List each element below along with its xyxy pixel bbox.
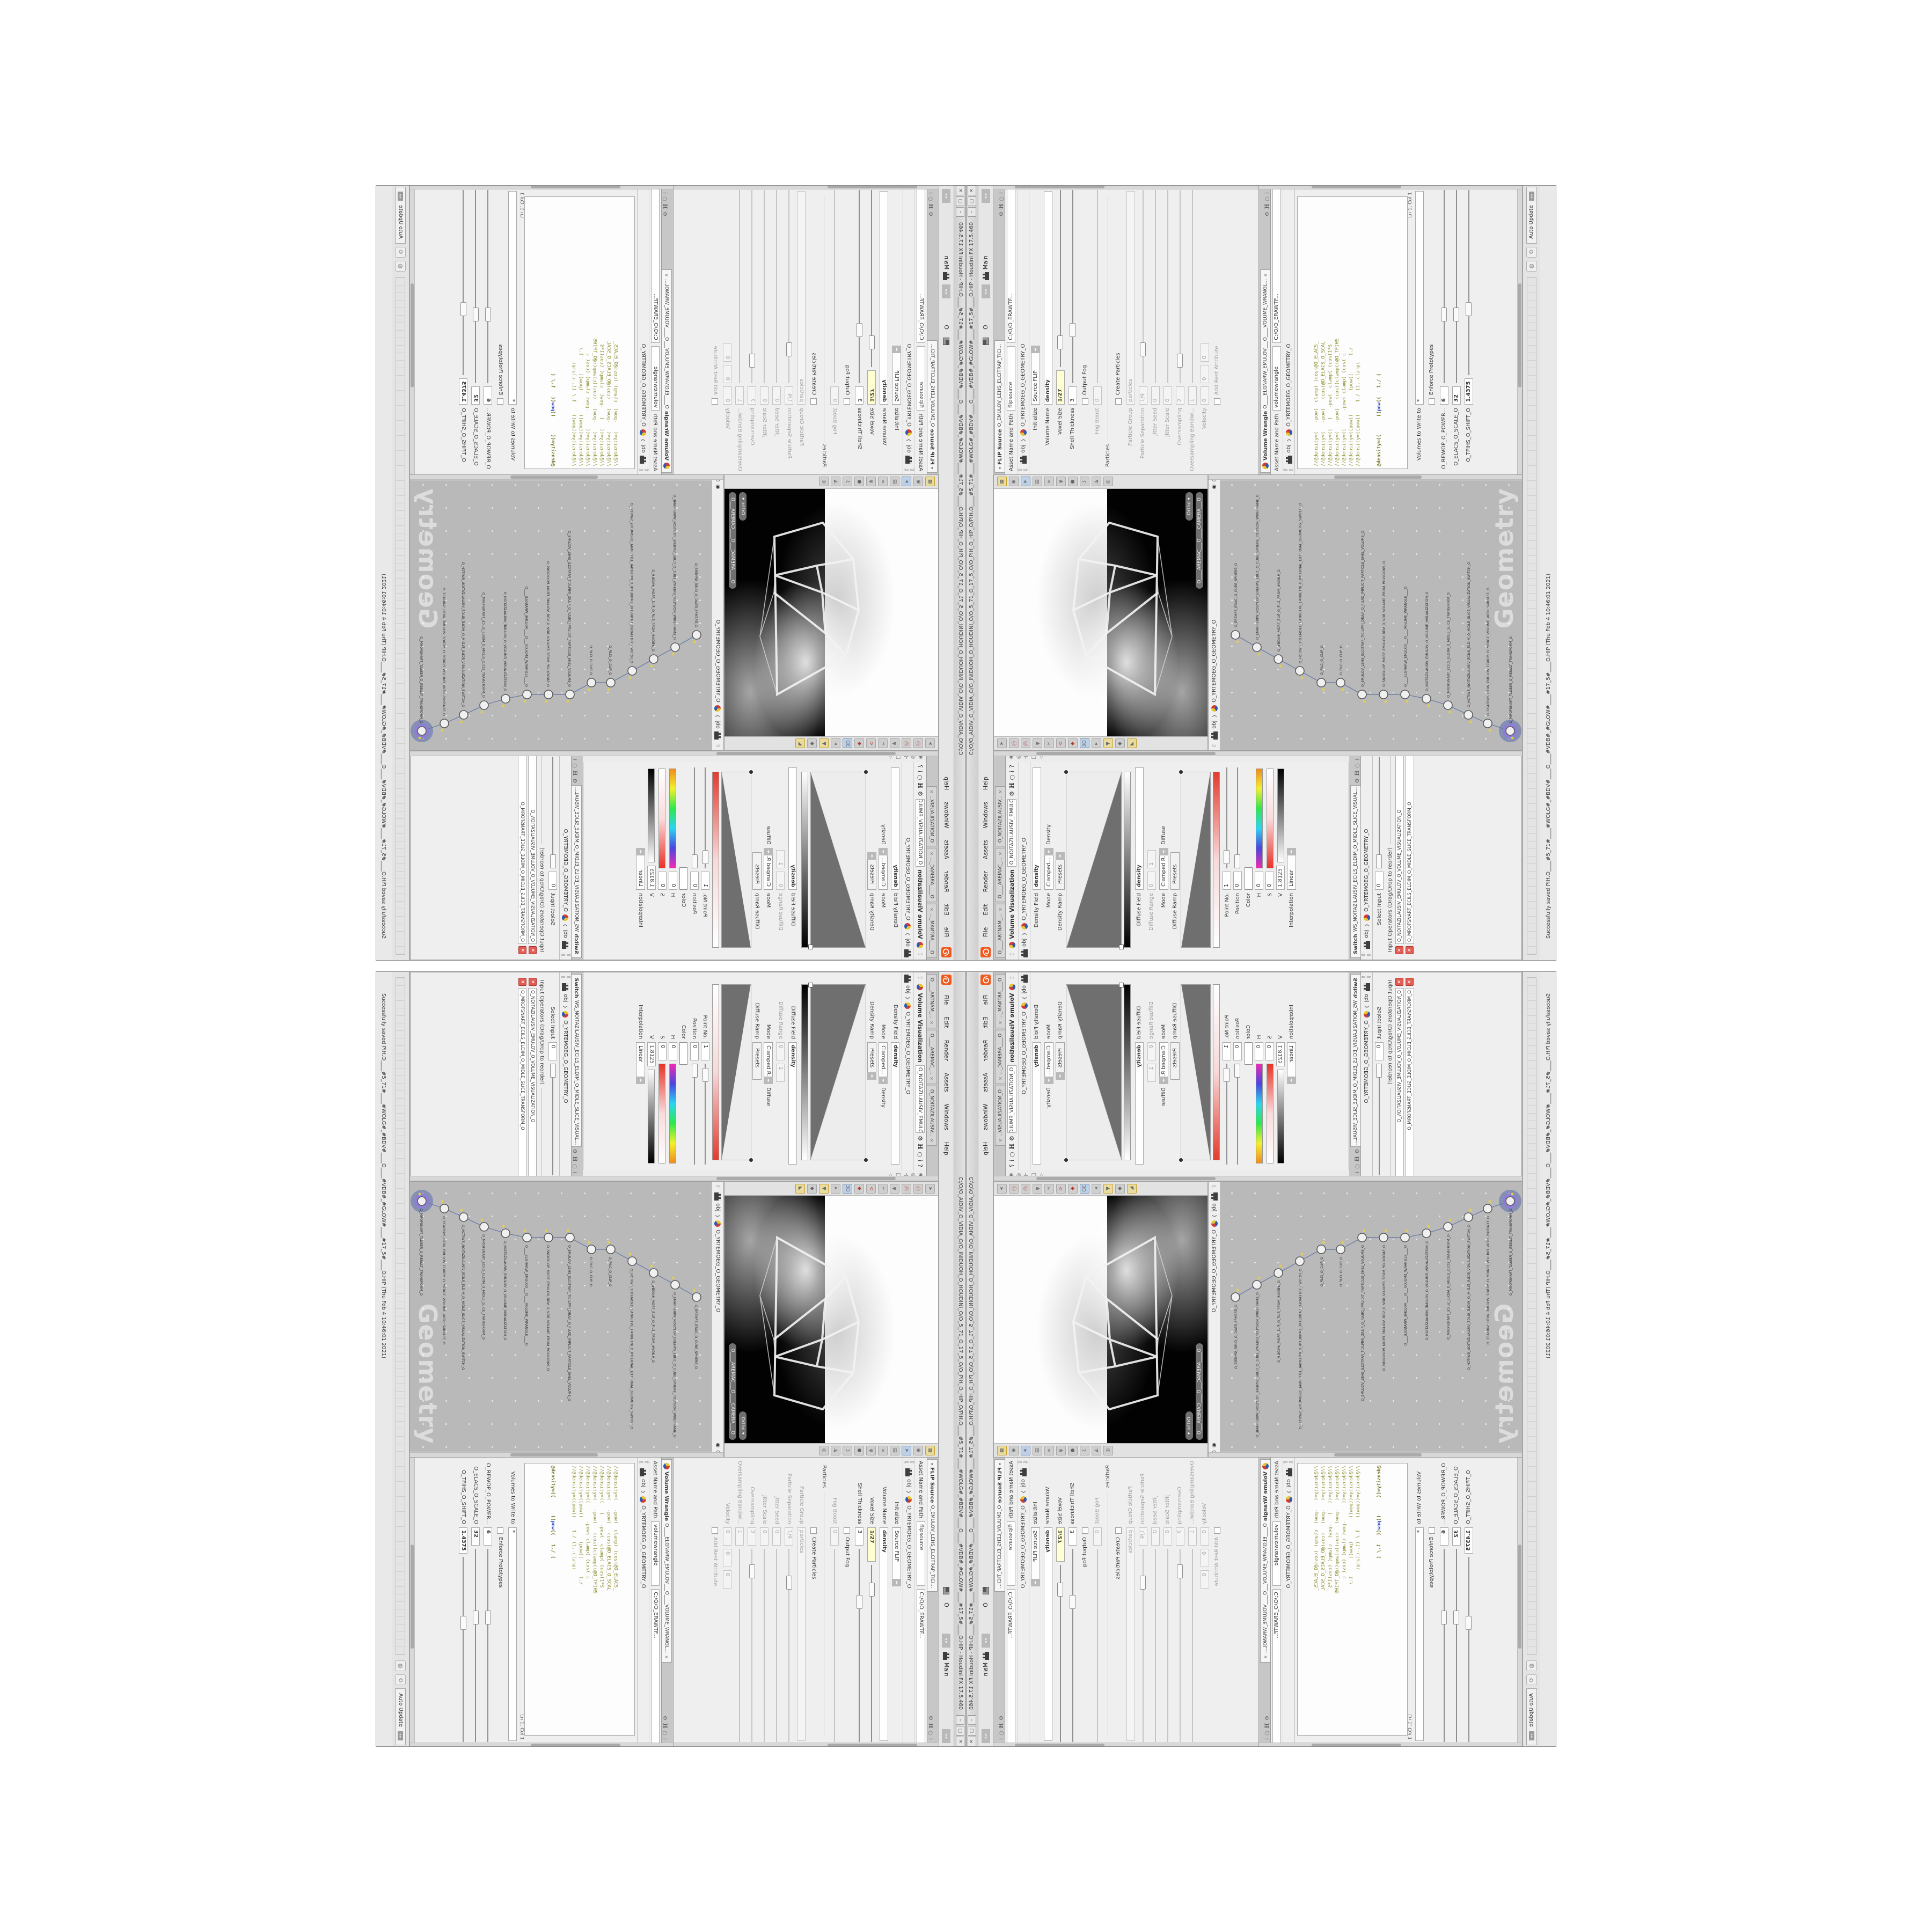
create-particles-checkbox[interactable] bbox=[811, 1527, 817, 1534]
pane-tab[interactable]: O_NOITAZILAUSIV... ✕ bbox=[927, 1086, 937, 1146]
jump-up-icon[interactable]: ⇧ bbox=[918, 952, 923, 957]
delete-input-icon[interactable]: ✕ bbox=[1406, 946, 1414, 954]
node-flag-icon[interactable] bbox=[524, 1230, 526, 1232]
gear-icon[interactable]: ⚙ bbox=[572, 1149, 577, 1154]
density-field-input[interactable]: density bbox=[891, 1042, 900, 1165]
cut-tool-icon[interactable]: ✂ bbox=[878, 739, 888, 749]
oversampling-bandwidth-slider[interactable] bbox=[1189, 190, 1196, 383]
network-node[interactable] bbox=[459, 711, 468, 719]
pane-tab[interactable]: O____ARTNAM_... ✕ bbox=[995, 904, 1005, 958]
network-node[interactable] bbox=[692, 631, 701, 639]
jump-down-icon[interactable]: ⇩ bbox=[638, 467, 643, 472]
points-icon[interactable]: ◎ bbox=[1103, 477, 1113, 487]
pose-library-icon[interactable]: Ⓟ bbox=[1021, 739, 1030, 749]
diffuse-presets-button[interactable]: Presets bbox=[1170, 852, 1180, 890]
gear-icon[interactable]: ⚙ bbox=[927, 1716, 933, 1721]
menu-item[interactable]: Edit bbox=[943, 1011, 950, 1034]
menu-item[interactable]: Help bbox=[943, 1136, 950, 1161]
help-icon[interactable]: ? bbox=[1008, 765, 1015, 768]
menu-item[interactable]: Edit bbox=[943, 898, 950, 921]
value-slider-gradient[interactable] bbox=[648, 769, 655, 862]
search-icon[interactable]: ○ bbox=[1355, 763, 1360, 768]
oversampling-bandwidth-field[interactable]: 1 bbox=[736, 1527, 744, 1546]
position-slider[interactable] bbox=[691, 1064, 698, 1165]
jitter-scale-slider[interactable] bbox=[1164, 190, 1172, 383]
tab-close-icon[interactable]: ✕ bbox=[1263, 273, 1268, 277]
network-node[interactable] bbox=[1358, 690, 1366, 699]
link-icon[interactable]: ∞ bbox=[878, 1446, 888, 1455]
minimize-button[interactable]: – bbox=[968, 1715, 976, 1725]
gear-icon[interactable]: ⚙ bbox=[927, 211, 933, 216]
cache-memory-icon[interactable]: ◍ bbox=[396, 261, 406, 272]
switch-pane-tab[interactable]: Switch WS_NOITAZILAUSIV_ECILS_ELDIM_O_MI… bbox=[572, 974, 582, 1147]
breadcrumb-root[interactable]: obj bbox=[906, 1479, 912, 1487]
breadcrumb-path[interactable]: O_YRTEMOEG_O_GEOMETRY_O bbox=[640, 1505, 646, 1588]
hue-slider-gradient[interactable] bbox=[1256, 1064, 1263, 1163]
density-ramp-curve[interactable] bbox=[810, 772, 866, 948]
cone-light-icon[interactable]: ◣ bbox=[795, 1184, 805, 1194]
cache-memory-icon[interactable]: ◍ bbox=[1526, 1660, 1537, 1671]
tab-close-icon[interactable]: ✕ bbox=[998, 1077, 1003, 1080]
breadcrumb-path[interactable]: O_YRTEMOEG_O_GEOMETRY_O bbox=[562, 1020, 568, 1103]
move-tool-icon[interactable]: ψ bbox=[890, 739, 899, 749]
node-flag-icon[interactable] bbox=[1342, 689, 1344, 691]
density-ramp-curve[interactable] bbox=[810, 984, 866, 1160]
network-node[interactable] bbox=[566, 690, 574, 699]
node-flag-icon[interactable] bbox=[1428, 705, 1430, 707]
pane-tab[interactable]: O_NOITAZILAUSIV... ✕ bbox=[927, 786, 937, 846]
left-pane-scrollbar[interactable] bbox=[994, 1176, 1522, 1181]
network-node[interactable] bbox=[1464, 1213, 1473, 1221]
asset-name-field[interactable]: volumewrangle bbox=[651, 346, 660, 411]
node-flag-icon[interactable] bbox=[545, 700, 548, 703]
value-input[interactable]: 1.8125 bbox=[647, 1042, 656, 1066]
view-cursor-icon[interactable]: ➤ bbox=[1021, 477, 1030, 487]
input-operator-field[interactable]: O_MROFSNART_ECILS_ELDIM_O_MIDLE_SLICE_TR… bbox=[518, 756, 527, 944]
network-node[interactable] bbox=[649, 1269, 658, 1277]
breadcrumb-root[interactable]: obj bbox=[562, 994, 568, 1002]
cut-tool-icon[interactable]: ✂ bbox=[1044, 1184, 1054, 1194]
hue-input[interactable]: 0 bbox=[1255, 872, 1263, 890]
select-tool-icon[interactable]: ➤ bbox=[997, 739, 1007, 749]
asset-name-field[interactable]: volumewrangle bbox=[1272, 1521, 1281, 1586]
desktop-selector[interactable]: Main bbox=[982, 255, 989, 280]
diffuse-field-input[interactable]: density bbox=[789, 767, 797, 890]
spare-param-slider[interactable] bbox=[460, 1557, 467, 1742]
view-3d-tool-icon[interactable]: 3D bbox=[1080, 1184, 1089, 1194]
asset-path-field[interactable]: C:/O/O_ERAWTF... bbox=[651, 188, 660, 343]
shade-sphere-icon[interactable]: ● bbox=[1068, 1446, 1078, 1455]
info-icon[interactable]: i bbox=[572, 759, 577, 760]
hook-icon[interactable]: ʖ bbox=[1080, 477, 1089, 487]
saturation-input[interactable]: 0 bbox=[658, 872, 667, 890]
network-node[interactable] bbox=[1231, 1293, 1240, 1301]
breadcrumb-root[interactable]: obj bbox=[640, 1479, 646, 1487]
gear-icon[interactable]: ⚙ bbox=[999, 1716, 1005, 1721]
breadcrumb-path[interactable]: O_YRTEMOEG_O_GEOMETRY_O bbox=[1364, 829, 1370, 911]
pose-library-icon[interactable]: Ⓟ bbox=[1021, 1184, 1030, 1194]
network-node[interactable] bbox=[418, 1197, 426, 1205]
jitter-seed-slider[interactable] bbox=[773, 190, 781, 383]
menu-item[interactable]: Help bbox=[982, 771, 989, 796]
hscript-icon[interactable]: H bbox=[1355, 771, 1360, 775]
help-icon[interactable]: ? bbox=[917, 765, 924, 768]
oversampling-bandwidth-slider[interactable] bbox=[1189, 1549, 1196, 1742]
node-name-field[interactable]: O_NOITAZILAUSIV_EMULO bbox=[1007, 1065, 1016, 1133]
network-canvas[interactable]: O_EREHPS_EBUC_O_CUBE_SPHERE_OO_EMARFERIW… bbox=[1220, 1182, 1522, 1452]
camera-lock-icon[interactable]: ◉ bbox=[1009, 477, 1019, 487]
hscript-icon[interactable]: H bbox=[917, 1144, 924, 1149]
vex-snippet-editor[interactable]: //@density=( -pow( clamp( (cos(@O_ELACS_… bbox=[524, 1463, 635, 1736]
create-particles-checkbox[interactable] bbox=[811, 398, 817, 405]
enforce-prototypes-checkbox[interactable] bbox=[1429, 398, 1435, 405]
breadcrumb-root[interactable]: obj bbox=[1286, 445, 1292, 453]
output-fog-checkbox[interactable] bbox=[844, 398, 851, 405]
hscript-icon[interactable]: H bbox=[662, 1723, 668, 1728]
oversampling-field[interactable]: 2 bbox=[748, 1527, 757, 1546]
output-fog-checkbox[interactable] bbox=[1082, 1527, 1088, 1534]
update-mode-icon[interactable]: ⟲ bbox=[1526, 1674, 1537, 1685]
menu-item[interactable]: Assets bbox=[982, 1067, 989, 1098]
ramp-handle-end[interactable] bbox=[1064, 770, 1069, 774]
auto-update-button[interactable]: Auto Update ◂ ▸ bbox=[1526, 187, 1537, 244]
network-node[interactable] bbox=[480, 701, 488, 709]
pane-tab[interactable]: O____AREMAC_... ✕ bbox=[995, 1030, 1005, 1084]
velocity-x-field[interactable]: 0 bbox=[1201, 386, 1209, 405]
network-scrollbar[interactable] bbox=[1209, 1452, 1522, 1457]
add-rest-checkbox[interactable] bbox=[1214, 398, 1220, 405]
ramp-handle-end-2[interactable] bbox=[1179, 770, 1183, 774]
jump-up-icon[interactable]: ⇧ bbox=[643, 1460, 649, 1465]
diffuse-range-min[interactable]: 0 bbox=[777, 872, 785, 890]
breadcrumb-root[interactable]: obj bbox=[640, 445, 646, 453]
breadcrumb-root[interactable]: obj bbox=[1020, 1479, 1026, 1487]
node-flag-icon[interactable] bbox=[460, 721, 463, 723]
menubar-scroll-2[interactable]: ◂ ▸ bbox=[982, 1729, 990, 1743]
velocity-y-field[interactable]: 0 bbox=[723, 365, 732, 383]
oversampling-bandwidth-field[interactable]: 1 bbox=[1188, 386, 1197, 405]
left-pane-scrollbar[interactable] bbox=[410, 1176, 938, 1181]
initialize-dropdown[interactable]: Source FLIP◂▸ bbox=[1031, 1527, 1040, 1586]
menubar-scroll[interactable]: ◂ ▸ bbox=[982, 284, 990, 298]
jump-down-icon[interactable]: ⇩ bbox=[1023, 467, 1029, 472]
network-node[interactable] bbox=[1231, 631, 1240, 639]
desktop-grid-icon[interactable] bbox=[983, 1587, 989, 1594]
network-node[interactable] bbox=[480, 1223, 488, 1231]
breadcrumb-root[interactable]: obj bbox=[1020, 445, 1026, 453]
spare-param-field[interactable]: 6 bbox=[484, 386, 493, 405]
tab-close-icon[interactable]: ✕ bbox=[998, 908, 1003, 911]
tab-close-icon[interactable]: ✕ bbox=[998, 1021, 1003, 1024]
density-ramp-gradient[interactable] bbox=[1124, 984, 1131, 1160]
spare-param-field[interactable]: 6 bbox=[1440, 386, 1448, 405]
breadcrumb-root[interactable]: obj bbox=[1364, 930, 1370, 938]
jitter-scale-field[interactable]: 0 bbox=[760, 386, 769, 405]
jitter-seed-slider[interactable] bbox=[773, 1549, 781, 1742]
network-node[interactable] bbox=[628, 667, 636, 675]
node-flag-icon[interactable] bbox=[672, 653, 675, 656]
camera-lock-icon[interactable]: ◉ bbox=[913, 1446, 923, 1455]
flip-pane-scrollbar[interactable] bbox=[993, 185, 1258, 189]
ramp-handle-end-2[interactable] bbox=[749, 770, 753, 774]
camera-badge[interactable]: O____AREMAC___O____CAMERA___O bbox=[1196, 1343, 1203, 1440]
velocity-z-field[interactable]: 0 bbox=[723, 343, 732, 362]
hscript-icon[interactable]: H bbox=[572, 771, 577, 775]
gear-icon[interactable]: ⚙ bbox=[1264, 211, 1270, 216]
gear-icon[interactable]: ⚙ bbox=[662, 211, 668, 216]
flip-pane-tab[interactable]: ▾ FLIP Source O_EMULOV_LEHS_ELCITRAP_TIC… bbox=[927, 340, 938, 473]
jitter-scale-field[interactable]: 0 bbox=[760, 1527, 769, 1546]
saturation-slider-gradient[interactable] bbox=[659, 1064, 666, 1163]
snapshot-icon[interactable]: ▤ bbox=[890, 1446, 899, 1455]
minimize-button[interactable]: – bbox=[968, 207, 976, 217]
particle-separation-slider[interactable] bbox=[1139, 190, 1147, 383]
delete-input-icon[interactable]: ✕ bbox=[529, 978, 537, 986]
viewport-canvas[interactable]: Ortho ▾ O____AREMAC___O____CAMERA___O bbox=[994, 489, 1207, 736]
menu-item-o[interactable]: O bbox=[943, 319, 950, 335]
diffuse-presets-button[interactable]: Presets bbox=[1170, 1042, 1180, 1080]
vex-snippet-editor[interactable]: //@density=( -pow( clamp( (cos(@O_ELACS_… bbox=[1297, 1463, 1408, 1736]
node-flag-icon[interactable] bbox=[460, 1209, 463, 1212]
network-breadcrumb-root[interactable]: obj bbox=[715, 721, 721, 729]
initialize-dropdown[interactable]: Source FLIP◂▸ bbox=[1031, 346, 1040, 405]
node-flag-icon[interactable] bbox=[588, 1241, 591, 1244]
snapshot-icon[interactable]: ▤ bbox=[1033, 477, 1042, 487]
jump-down-icon[interactable]: ⇩ bbox=[560, 953, 565, 957]
tab-close-icon[interactable]: ✕ bbox=[998, 1139, 1003, 1143]
jitter-scale-field[interactable]: 0 bbox=[1163, 386, 1172, 405]
node-graph[interactable]: O_EREHPS_EBUC_O_CUBE_SPHERE_OO_EMARFERIW… bbox=[1220, 480, 1522, 750]
ramp-handle-start[interactable] bbox=[1119, 983, 1124, 987]
pane-tab[interactable]: O____AREMAC_... ✕ bbox=[995, 848, 1005, 902]
timeline-slider[interactable] bbox=[1527, 277, 1536, 955]
network-node[interactable] bbox=[606, 678, 615, 687]
network-breadcrumb-path[interactable]: O_YRTEMOEG_O_GEOMETRY_O bbox=[715, 1230, 721, 1312]
network-node[interactable] bbox=[440, 1204, 449, 1213]
enforce-prototypes-checkbox[interactable] bbox=[497, 398, 504, 405]
cut-tool-icon[interactable]: ✂ bbox=[878, 1184, 888, 1194]
breadcrumb-root[interactable]: obj bbox=[905, 939, 911, 947]
breadcrumb-root[interactable]: obj bbox=[1021, 939, 1027, 947]
volume-name-field[interactable]: density bbox=[1044, 1527, 1052, 1741]
spare-param-slider[interactable] bbox=[1465, 1557, 1473, 1742]
node-flag-icon[interactable] bbox=[629, 1253, 632, 1256]
wrangle-pane-scrollbar[interactable] bbox=[1259, 185, 1522, 189]
jump-up-icon[interactable]: ⇧ bbox=[1009, 952, 1015, 957]
left-pane-scrollbar[interactable] bbox=[410, 751, 938, 756]
tab-close-icon[interactable]: ✕ bbox=[998, 852, 1003, 855]
flip-pane-tab[interactable]: ▾ FLIP Source O_EMULOV_LEHS_ELCITRAP_TIC… bbox=[927, 1459, 938, 1592]
network-node[interactable] bbox=[1464, 711, 1473, 719]
hscript-icon[interactable]: H bbox=[927, 204, 933, 209]
update-mode-icon[interactable]: ⟲ bbox=[396, 1674, 406, 1685]
timeline-slider[interactable] bbox=[396, 277, 406, 955]
network-node[interactable] bbox=[1506, 727, 1514, 735]
grid-snap-icon[interactable]: ▦ bbox=[997, 1446, 1007, 1455]
shell-thickness-field[interactable]: 3 bbox=[855, 386, 864, 405]
enforce-prototypes-checkbox[interactable] bbox=[1429, 1527, 1435, 1534]
tab-close-icon[interactable]: ✕ bbox=[930, 1021, 934, 1024]
delete-input-icon[interactable]: ✕ bbox=[1395, 978, 1403, 986]
node-flag-icon[interactable] bbox=[1322, 689, 1325, 691]
network-canvas[interactable]: O_EREHPS_EBUC_O_CUBE_SPHERE_OO_EMARFERIW… bbox=[410, 480, 712, 750]
network-breadcrumb-path[interactable]: O_YRTEMOEG_O_GEOMETRY_O bbox=[715, 619, 721, 702]
network-node[interactable] bbox=[1379, 690, 1388, 699]
pin-icon[interactable]: ◉ bbox=[1211, 1443, 1217, 1448]
wrangle-pane-hscrollbar[interactable] bbox=[1517, 185, 1522, 474]
node-flag-icon[interactable] bbox=[441, 1201, 444, 1203]
enforce-prototypes-checkbox[interactable] bbox=[497, 1527, 504, 1534]
voxel-size-field[interactable]: 1/27 bbox=[868, 1527, 876, 1562]
particle-separation-field[interactable]: 1/9 bbox=[1139, 386, 1147, 405]
volume-name-field[interactable]: density bbox=[880, 191, 889, 405]
node-flag-icon[interactable] bbox=[502, 1225, 505, 1228]
breadcrumb-path[interactable]: O_YRTEMOEG_O_GEOMETRY_O bbox=[905, 1012, 911, 1094]
point-no-input[interactable]: 1 bbox=[1223, 872, 1231, 890]
maximize-button[interactable]: ▢ bbox=[968, 196, 976, 206]
wrangle-pane-tab[interactable]: Volume Wrangle O____ELGNARW_EMULOV___O__… bbox=[1260, 1459, 1270, 1663]
diamond-tool-icon[interactable]: ◆ bbox=[1115, 739, 1125, 749]
hue-input[interactable]: 0 bbox=[1255, 1042, 1263, 1060]
node-flag-icon[interactable] bbox=[1489, 729, 1491, 732]
spare-param-slider[interactable] bbox=[472, 190, 480, 383]
pin-icon[interactable]: ◉ bbox=[1211, 485, 1217, 489]
voxel-size-field[interactable]: 1/27 bbox=[868, 370, 876, 405]
network-node[interactable] bbox=[1422, 1229, 1431, 1238]
desktop-selector[interactable]: Main bbox=[982, 1652, 989, 1677]
node-flag-icon[interactable] bbox=[1469, 721, 1472, 723]
ortho-badge[interactable]: Ortho ▾ bbox=[739, 492, 747, 521]
desktop-selector[interactable]: Main bbox=[943, 1652, 950, 1677]
jitter-seed-field[interactable]: 0 bbox=[1151, 1527, 1160, 1546]
network-node[interactable] bbox=[523, 690, 531, 699]
tab-close-icon[interactable]: ✕ bbox=[930, 852, 934, 855]
network-breadcrumb-root[interactable]: obj bbox=[1211, 721, 1217, 729]
interpolation-dropdown[interactable]: Linear◂▸ bbox=[1287, 848, 1296, 890]
diffuse-range-min[interactable]: 0 bbox=[1147, 872, 1156, 890]
network-node[interactable] bbox=[566, 1233, 574, 1242]
hscript-icon[interactable]: H bbox=[1008, 783, 1015, 788]
diffuse-mode-dropdown[interactable]: Clamped R...◂▸ bbox=[764, 848, 773, 890]
diffuse-range-max[interactable]: 1 bbox=[777, 1064, 785, 1082]
info-icon[interactable]: i bbox=[1264, 192, 1270, 194]
diffuse-ramp-curve[interactable] bbox=[1181, 772, 1211, 948]
gear-icon[interactable]: ⚙ bbox=[917, 1136, 924, 1141]
diamond-tool-icon[interactable]: ◆ bbox=[807, 1184, 817, 1194]
create-particles-checkbox[interactable] bbox=[1115, 398, 1122, 405]
network-breadcrumb-root[interactable]: obj bbox=[1211, 1203, 1217, 1211]
volume-name-field[interactable]: density bbox=[880, 1527, 889, 1741]
search-icon[interactable]: ○ bbox=[572, 763, 577, 768]
wrangle-pane-scrollbar[interactable] bbox=[410, 1743, 673, 1747]
node-flag-icon[interactable] bbox=[481, 711, 484, 714]
pane-tab[interactable]: O_NOITAZILAUSIV... ✕ bbox=[995, 786, 1005, 846]
view-3d-tool-icon[interactable]: 3D bbox=[1080, 739, 1089, 749]
point-no-input[interactable]: 1 bbox=[701, 872, 709, 890]
gear-icon[interactable]: ⚙ bbox=[1355, 778, 1360, 783]
node-flag-icon[interactable] bbox=[567, 700, 569, 703]
breadcrumb-path[interactable]: O_YRTEMOEG_O_GEOMETRY_O bbox=[562, 829, 568, 911]
grid-snap-icon[interactable]: ▦ bbox=[925, 1446, 935, 1455]
pyramid-icon[interactable]: ◮ bbox=[831, 1446, 840, 1455]
cache-memory-icon[interactable]: ◍ bbox=[396, 1660, 406, 1671]
hue-slider-gradient[interactable] bbox=[670, 1064, 677, 1163]
breadcrumb-path[interactable]: O_YRTEMOEG_O_GEOMETRY_O bbox=[1021, 1012, 1027, 1094]
search-icon[interactable]: ○ bbox=[1264, 196, 1270, 201]
camera-lock-icon[interactable]: ◉ bbox=[1009, 1446, 1019, 1455]
menu-item[interactable]: Render bbox=[982, 865, 989, 898]
shade-sphere-icon[interactable]: ● bbox=[854, 477, 864, 487]
saturation-slider-gradient[interactable] bbox=[1267, 769, 1274, 868]
rotate-tool-icon[interactable]: ⟲ bbox=[866, 739, 876, 749]
color-swatch[interactable] bbox=[680, 867, 688, 890]
asset-path-field[interactable]: C:/O/O_ERAWTF... bbox=[1272, 1589, 1281, 1744]
node-flag-icon[interactable] bbox=[608, 689, 610, 691]
ramp-handle-end-2[interactable] bbox=[749, 1158, 753, 1162]
fog-boost-slider[interactable] bbox=[831, 1549, 839, 1742]
auto-update-button[interactable]: Auto Update ◂ ▸ bbox=[396, 1688, 406, 1745]
network-node[interactable] bbox=[587, 1245, 596, 1254]
rotate-tool-icon[interactable]: ⟲ bbox=[1056, 739, 1066, 749]
network-node[interactable] bbox=[1296, 1257, 1304, 1265]
select-tool-icon[interactable]: ➤ bbox=[997, 1184, 1007, 1194]
node-flag-icon[interactable] bbox=[1342, 1241, 1344, 1244]
saturation-input[interactable]: 0 bbox=[658, 1042, 667, 1060]
close-button[interactable]: ✕ bbox=[968, 186, 976, 195]
asset-path-field[interactable]: C:/O/O_ERAWTF... bbox=[917, 1589, 925, 1744]
menu-item[interactable]: Edit bbox=[982, 898, 989, 921]
shell-thickness-slider[interactable] bbox=[1069, 1549, 1077, 1742]
select-input-field[interactable]: 0 bbox=[1375, 1042, 1384, 1060]
network-node[interactable] bbox=[1253, 1280, 1261, 1289]
velocity-z-field[interactable]: 0 bbox=[723, 1570, 732, 1589]
velocity-y-field[interactable]: 0 bbox=[1201, 1549, 1209, 1567]
menu-item[interactable]: Windows bbox=[982, 796, 989, 834]
node-flag-icon[interactable] bbox=[1301, 1253, 1304, 1256]
tab-close-icon[interactable]: ✕ bbox=[930, 1139, 934, 1143]
pane-tab[interactable]: O____AREMAC_... ✕ bbox=[927, 848, 937, 902]
info-icon[interactable]: i bbox=[1008, 1160, 1015, 1161]
cut-tool-icon[interactable]: ✂ bbox=[1044, 739, 1054, 749]
network-node[interactable] bbox=[544, 690, 553, 699]
node-name-field[interactable]: O_NOITAZILAUSIV_EMULO bbox=[916, 799, 925, 867]
view-cursor-icon[interactable]: ➤ bbox=[902, 1446, 911, 1455]
update-mode-icon[interactable]: ⟲ bbox=[396, 247, 406, 258]
density-presets-button[interactable]: Presets◂▸ bbox=[868, 1042, 877, 1080]
position-slider[interactable] bbox=[1234, 1064, 1241, 1165]
point-no-input[interactable]: 1 bbox=[1223, 1042, 1231, 1060]
network-node[interactable] bbox=[1296, 667, 1304, 675]
spare-param-field[interactable]: 1.4375 bbox=[1465, 378, 1473, 405]
desktop-grid-icon[interactable] bbox=[983, 338, 989, 345]
diffuse-range-max[interactable]: 1 bbox=[1147, 850, 1156, 868]
close-button[interactable]: ✕ bbox=[956, 186, 964, 195]
network-canvas[interactable]: O_EREHPS_EBUC_O_CUBE_SPHERE_OO_EMARFERIW… bbox=[1220, 480, 1522, 750]
arrow-tool-icon[interactable]: ▸ bbox=[1092, 739, 1101, 749]
pose-library-icon[interactable]: Ⓟ bbox=[902, 739, 911, 749]
diffuse-range-min[interactable]: 0 bbox=[1147, 1042, 1156, 1060]
jump-down-icon[interactable]: ⇩ bbox=[1367, 975, 1372, 979]
node-flag-icon[interactable] bbox=[1385, 700, 1387, 703]
jump-up-icon[interactable]: ⇧ bbox=[715, 743, 721, 748]
add-rest-checkbox[interactable] bbox=[1214, 1527, 1220, 1534]
jump-down-icon[interactable]: ⇩ bbox=[1367, 953, 1372, 957]
breadcrumb-path[interactable]: O_YRTEMOEG_O_GEOMETRY_O bbox=[1020, 343, 1026, 426]
network-node[interactable] bbox=[587, 678, 596, 687]
node-flag-icon[interactable] bbox=[1301, 677, 1304, 679]
info-icon[interactable]: i bbox=[927, 192, 933, 194]
tab-close-icon[interactable]: ✕ bbox=[930, 908, 934, 911]
